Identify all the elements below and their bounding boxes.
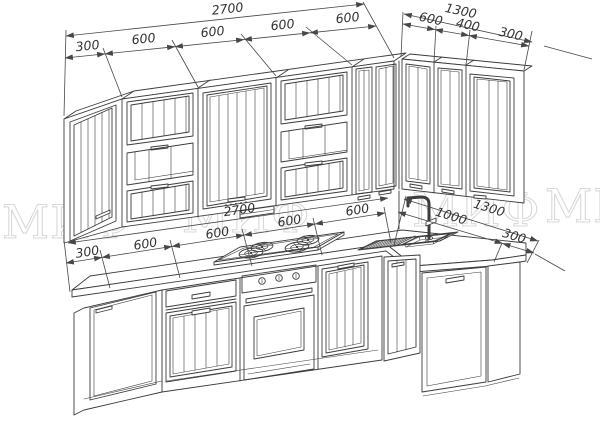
dim-label: 2700 xyxy=(211,0,244,18)
base-end-cabinet xyxy=(74,290,162,415)
corner-sink-cabinet xyxy=(384,255,520,396)
dim-label: 600 xyxy=(132,234,158,253)
wall-cabinets-right xyxy=(399,54,532,203)
base-cabinet-door xyxy=(322,262,368,357)
door-handle xyxy=(358,195,370,200)
dim-label: 300 xyxy=(498,24,525,44)
watermark-text: МИФ xyxy=(545,179,600,233)
kitchen-drawing: МИФ МИФ МИФ МИФ xyxy=(0,0,600,424)
dim-label: 600 xyxy=(335,9,360,26)
dim-label: 300 xyxy=(75,37,100,54)
dim-label: 400 xyxy=(455,15,482,35)
dim-label: 600 xyxy=(418,9,445,29)
dim-label: 600 xyxy=(200,23,225,40)
dim-label: 600 xyxy=(270,16,295,33)
dim-label: 600 xyxy=(131,30,156,47)
